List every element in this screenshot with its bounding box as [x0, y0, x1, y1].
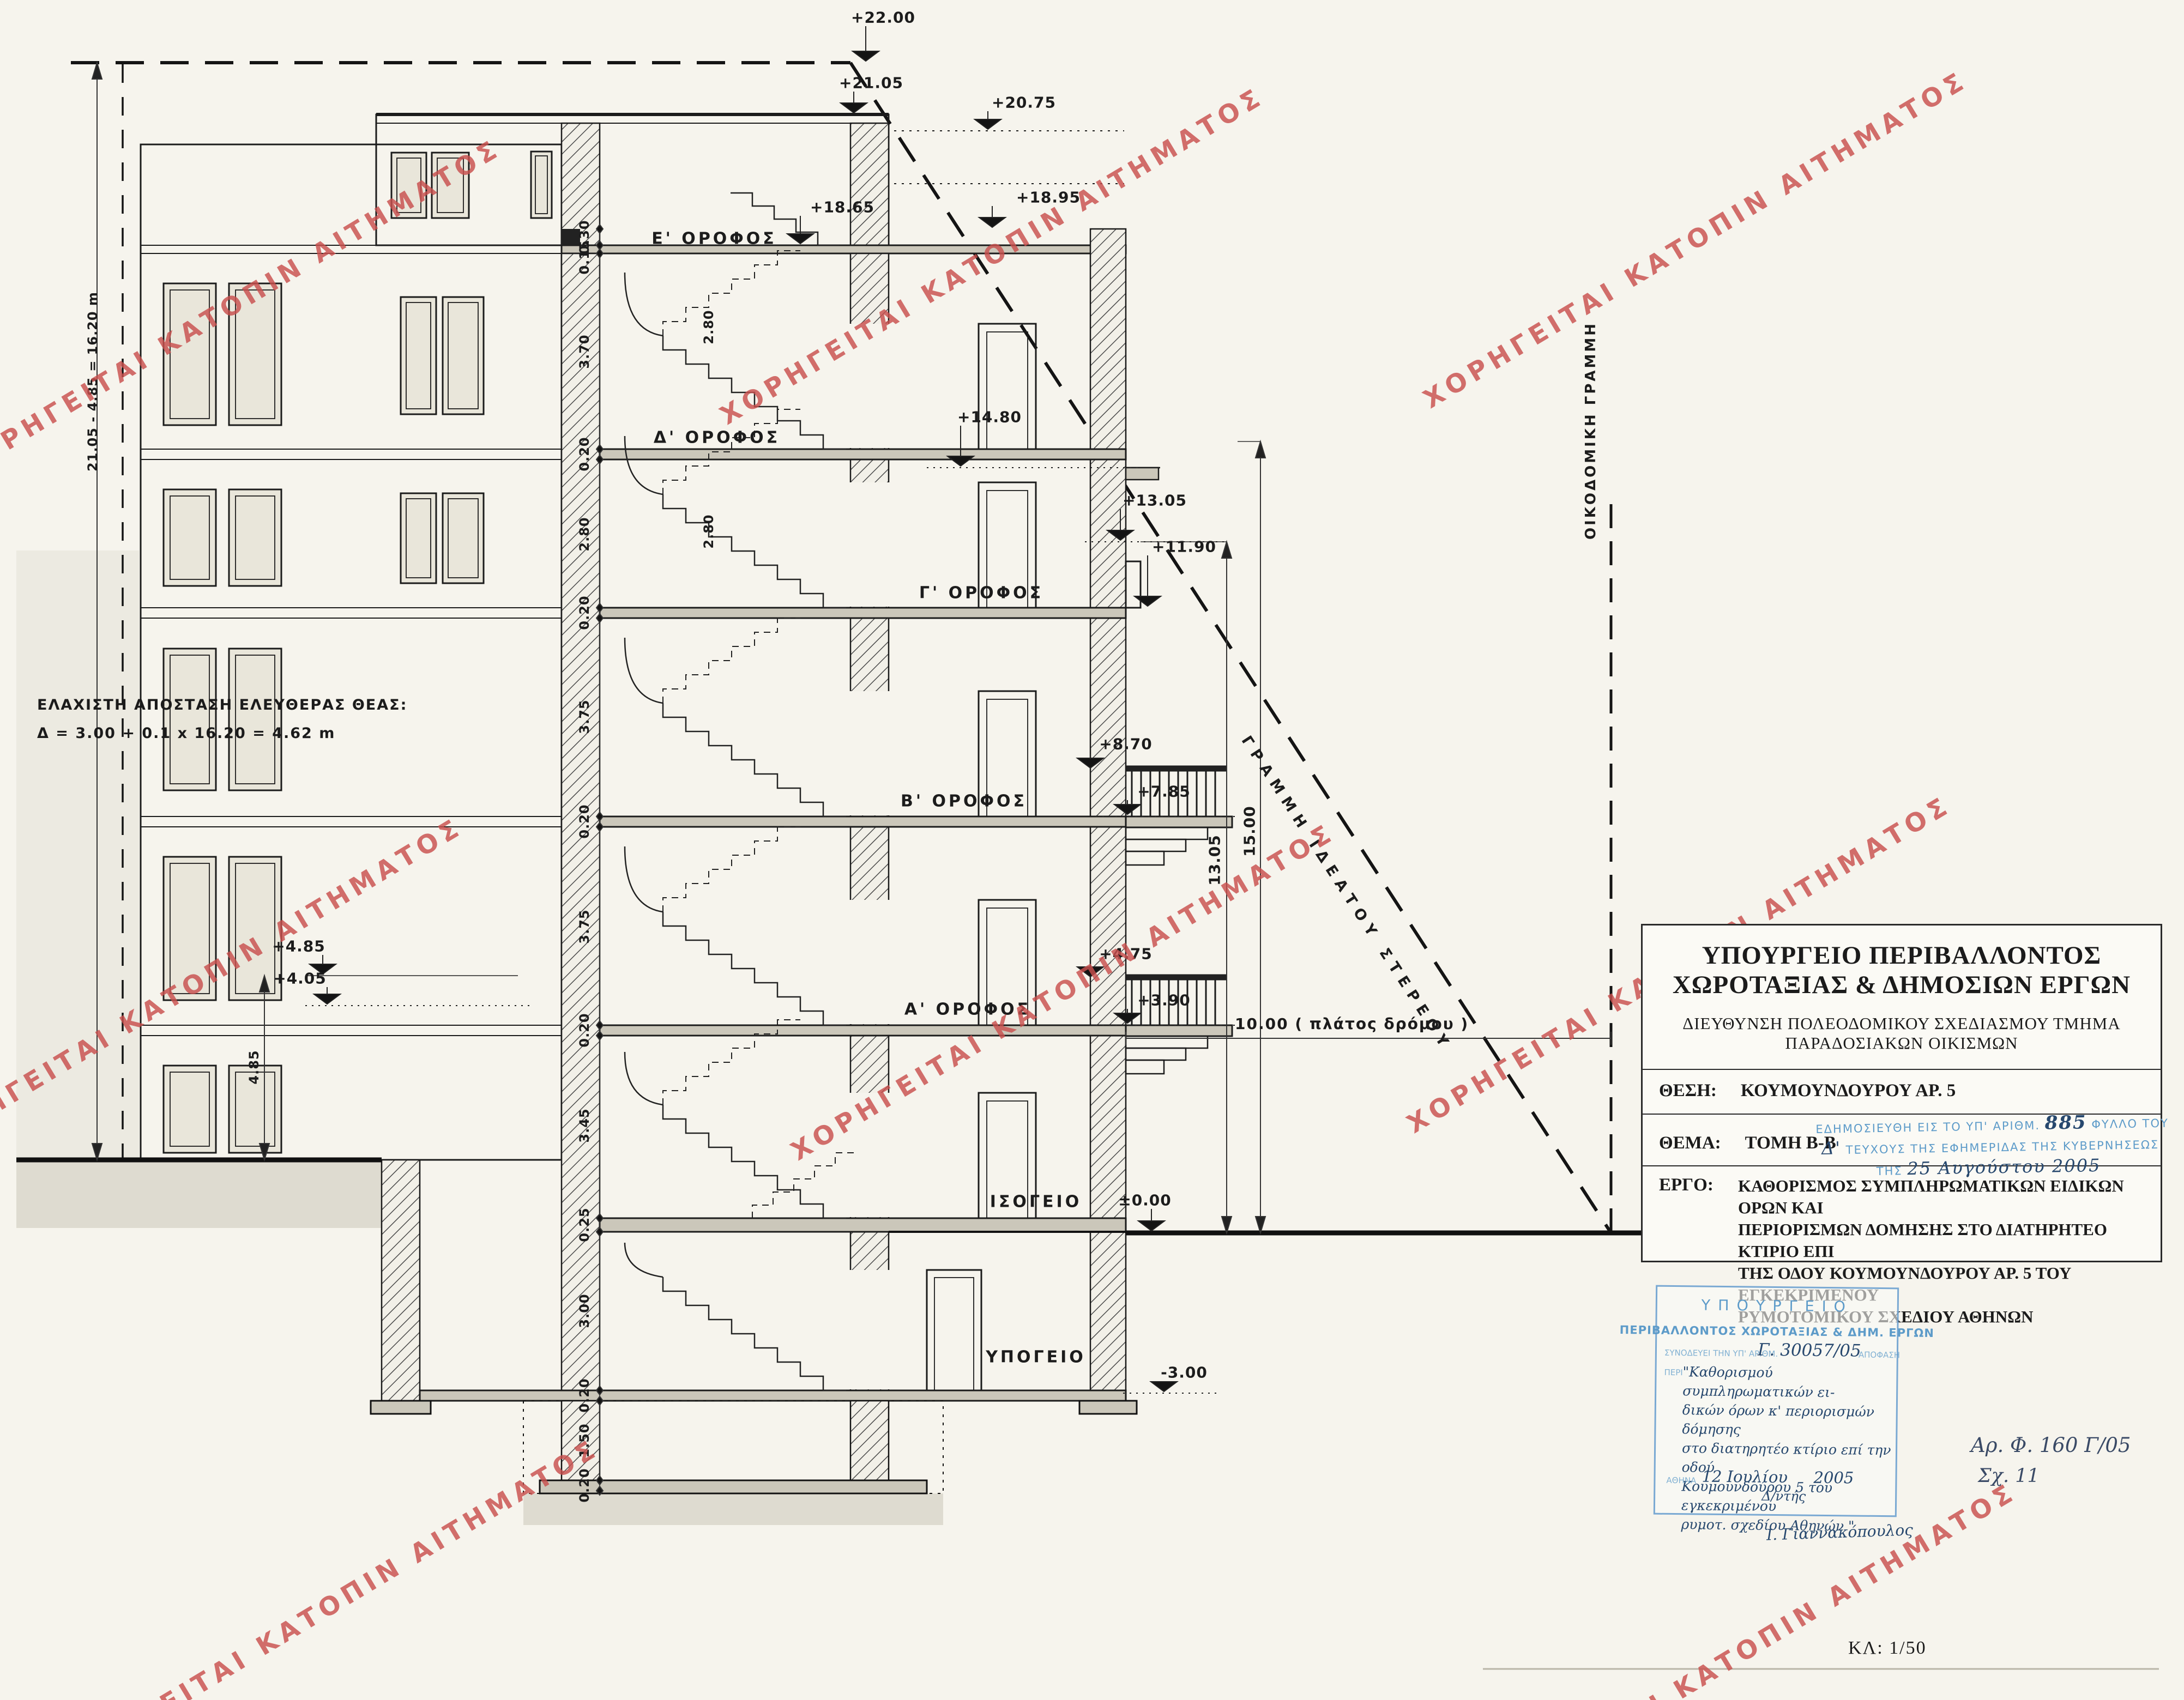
elevation-label-parapet-c: +13.05 [1123, 492, 1187, 510]
elevation-label-terrace-d: +14.80 [957, 408, 1022, 426]
elevation-label-basement: -3.00 [1161, 1364, 1208, 1382]
elevation-label-penthouse: +21.05 [839, 74, 903, 92]
department-line2: ΠΑΡΑΔΟΣΙΑΚΩΝ ΟΙΚΙΣΜΩΝ [1643, 1033, 2161, 1053]
approval-text-line2: δικών όρων κ' περιορισμών δόμησης [1682, 1400, 1896, 1441]
elevation-label-upper-parapet: +20.75 [992, 94, 1056, 112]
title-block-header: ΥΠΟΥΡΓΕΙΟ ΠΕΡΙΒΑΛΛΟΝΤΟΣ ΧΩΡΟΤΑΞΙΑΣ & ΔΗΜ… [1643, 925, 2161, 1069]
dim-chain-13: 0.20 [577, 1378, 592, 1412]
thema-label: ΘΕΜΑ: [1659, 1133, 1721, 1153]
title-block-location-row: ΘΕΣΗ: ΚΟΥΜΟΥΝΔΟΥΡΟΥ ΑΡ. 5 [1643, 1069, 2161, 1114]
ergo-line1: ΚΑΘΟΡΙΣΜΟΣ ΣΥΜΠΛΗΡΩΜΑΤΙΚΩΝ ΕΙΔΙΚΩΝ ΟΡΩΝ … [1738, 1175, 2161, 1219]
facade-windows [164, 283, 484, 1153]
thesi-value: ΚΟΥΜΟΥΝΔΟΥΡΟΥ ΑΡ. 5 [1741, 1081, 1956, 1100]
dim-chain-10: 3.45 [577, 1108, 592, 1142]
department-line1: ΔΙΕΥΘΥΝΣΗ ΠΟΛΕΟΔΟΜΙΚΟΥ ΣΧΕΔΙΑΣΜΟΥ ΤΜΗΜΑ [1643, 1014, 2161, 1033]
elevation-label-street: ±0.00 [1118, 1191, 1172, 1209]
dim-chain-4: 2.80 [577, 517, 592, 551]
approval-text: "Καθορισμού συμπληρωματικών ει- δικών όρ… [1681, 1362, 1896, 1536]
min-view-formula: Δ = 3.00 + 0.1 x 16.20 = 4.62 m [37, 725, 335, 742]
approval-ref-number: Γ. 30057/05 [1758, 1340, 1861, 1361]
approval-peri-label: ΠΕΡΙ [1664, 1368, 1682, 1377]
elevation-label-roof: +18.65 [810, 198, 874, 216]
elevation-label-left-lower: +4.05 [273, 970, 327, 988]
side-note-sheet: Σχ. 11 [1978, 1465, 2040, 1487]
dim-height-13: 13.05 [1206, 834, 1224, 886]
floor-label-b: Β' ΟΡΟΦΟΣ [901, 792, 1027, 811]
gazette-line1-prefix: ΕΔΗΜΟΣΙΕΥΘΗ ΕΙΣ ΤΟ ΥΠ' ΑΡΙΘΜ. [1815, 1119, 2040, 1136]
elevation-label-slab-b: +7.85 [1137, 783, 1191, 801]
ideal-solid-envelope [71, 63, 1611, 1233]
dim-chain-1: 0.15 [577, 240, 592, 274]
floor-label-ground: ΙΣΟΓΕΙΟ [990, 1193, 1082, 1212]
gazette-date: 25 Αυγούστου 2005 [1907, 1155, 2101, 1179]
approval-header1: ΥΠΟΥΡΓΕΙΟ [1702, 1297, 1853, 1316]
approval-ref-suffix: ΑΠΟΦΑΣΗ [1859, 1350, 1900, 1360]
floor-label-basement: ΥΠΟΓΕΙΟ [986, 1348, 1086, 1367]
balconies [1126, 468, 1232, 1074]
title-block-project-row: ΕΡΓΟ: ΚΑΘΟΡΙΣΜΟΣ ΣΥΜΠΛΗΡΩΜΑΤΙΚΩΝ ΕΙΔΙΚΩΝ… [1643, 1165, 2161, 1261]
min-view-title: ΕΛΑΧΙΣΤΗ ΑΠΟΣΤΑΣΗ ΕΛΕΥΘΕΡΑΣ ΘΕΑΣ: [37, 697, 407, 713]
elevation-label-rail-b: +8.70 [1099, 735, 1153, 753]
ministry-line1: ΥΠΟΥΡΓΕΙΟ ΠΕΡΙΒΑΛΛΟΝΤΟΣ [1643, 941, 2161, 970]
dim-door-height-1: 2.80 [701, 310, 716, 344]
elevation-label-slab-a: +3.90 [1137, 991, 1191, 1009]
dim-height-15: 15.00 [1241, 806, 1259, 857]
approval-text-line1: "Καθορισμού συμπληρωματικών ει- [1682, 1362, 1897, 1402]
dim-chain-11: 0.25 [577, 1207, 592, 1242]
floor-label-e: Ε' ΟΡΟΦΟΣ [651, 229, 777, 249]
building-line-label: ΟΙΚΟΔΟΜΙΚΗ ΓΡΑΜΜΗ [1583, 322, 1599, 540]
gazette-number: 885 [2044, 1111, 2087, 1134]
approval-stamp: ΥΠΟΥΡΓΕΙΟ ΠΕΡΙΒΑΛΛΟΝΤΟΣ ΧΩΡΟΤΑΞΙΑΣ & ΔΗΜ… [1654, 1285, 1899, 1517]
scale-note: ΚΛ: 1/50 [1848, 1638, 1927, 1659]
dim-chain-12: 3.00 [577, 1293, 592, 1328]
thesi-label: ΘΕΣΗ: [1659, 1081, 1717, 1100]
dim-chain-8: 3.75 [577, 909, 592, 943]
approval-header2: ΠΕΡΙΒΑΛΛΟΝΤΟΣ ΧΩΡΟΤΑΞΙΑΣ & ΔΗΜ. ΕΡΓΩΝ [1620, 1323, 1934, 1340]
title-block: ΥΠΟΥΡΓΕΙΟ ΠΕΡΙΒΑΛΛΟΝΤΟΣ ΧΩΡΟΤΑΞΙΑΣ & ΔΗΜ… [1641, 924, 2162, 1262]
gazette-line1-suffix: ΦΥΛΛΟ ΤΟΥ [2091, 1117, 2169, 1131]
ergo-line2: ΠΕΡΙΟΡΙΣΜΩΝ ΔΟΜΗΣΗΣ ΣΤΟ ΔΙΑΤΗΡΗΤΕΟ ΚΤΙΡΙ… [1738, 1219, 2161, 1262]
gazette-issue: Δ' [1821, 1138, 1842, 1159]
dim-chain-9: 0.20 [577, 1013, 592, 1047]
floor-label-d: Δ' ΟΡΟΦΟΣ [654, 428, 780, 447]
dim-chain-2: 3.70 [577, 334, 592, 368]
floor-label-c: Γ' ΟΡΟΦΟΣ [919, 584, 1043, 603]
dim-left-lower: 4.85 [246, 1050, 262, 1084]
approval-date-year: 2005 [1813, 1468, 1854, 1487]
approval-city-label: ΑΘΗΝΑ [1666, 1475, 1696, 1486]
section-drawing-sheet: +22.00 +21.05 +20.75 +18.95 +18.65 +14.8… [0, 0, 2184, 1700]
dim-door-height-2: 2.80 [701, 514, 716, 548]
dim-chain-3: 0.20 [577, 437, 592, 471]
side-note-ref: Αρ. Φ. 160 Γ/05 [1971, 1433, 2131, 1457]
dim-chain-6: 3.75 [577, 699, 592, 734]
ministry-line2: ΧΩΡΟΤΑΞΙΑΣ & ΔΗΜΟΣΙΩΝ ΕΡΓΩΝ [1643, 970, 2161, 1000]
approval-date-day: 12 Ιουλίου [1702, 1467, 1788, 1487]
gazette-line3-prefix: ΤΗΣ [1877, 1164, 1903, 1178]
ergo-label: ΕΡΓΟ: [1659, 1175, 1714, 1195]
dim-chain-7: 0.20 [577, 804, 592, 838]
elevation-label-top: +22.00 [851, 9, 915, 27]
dim-chain-5: 0.20 [577, 595, 592, 630]
approval-signer-title: Δ/ντής [1761, 1489, 1806, 1504]
elevation-label-slab-c: +11.90 [1152, 538, 1216, 556]
